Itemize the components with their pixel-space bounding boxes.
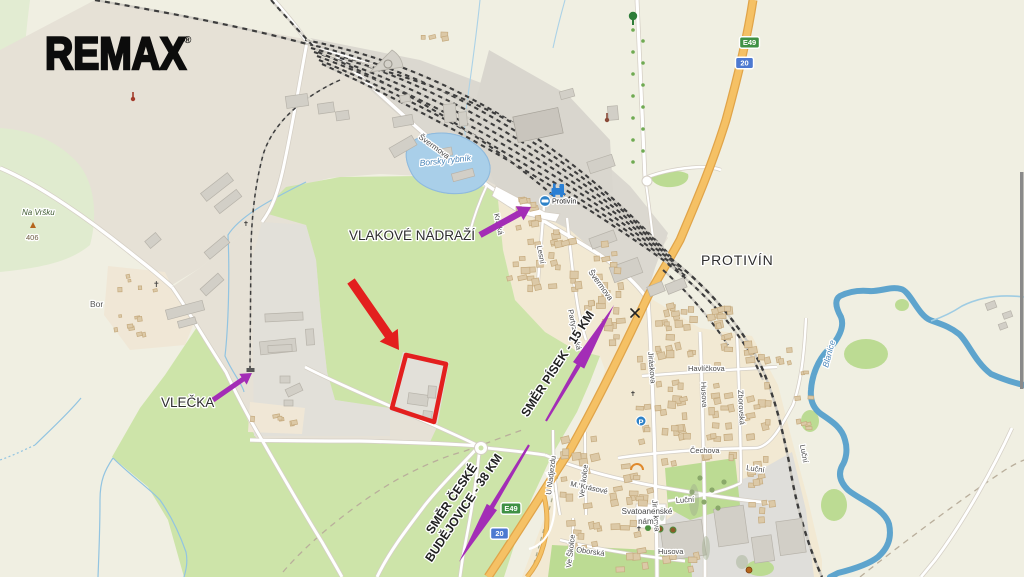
svg-text:®: ® <box>184 35 192 46</box>
svg-text:E49: E49 <box>504 504 517 513</box>
svg-text:406: 406 <box>26 233 39 242</box>
svg-text:VLAKOVÉ NÁDRAŽÍ: VLAKOVÉ NÁDRAŽÍ <box>349 228 475 243</box>
svg-text:✝: ✝ <box>630 390 636 398</box>
svg-text:✝: ✝ <box>636 525 642 533</box>
svg-text:Na Vršku: Na Vršku <box>22 208 55 217</box>
svg-text:Svatoanenské: Svatoanenské <box>622 507 673 516</box>
svg-text:Husova: Husova <box>658 547 684 556</box>
svg-text:Husova: Husova <box>699 382 709 409</box>
svg-text:Bor: Bor <box>90 299 103 309</box>
svg-text:Zborovská: Zborovská <box>736 390 747 426</box>
svg-text:E49: E49 <box>743 38 756 47</box>
svg-text:20: 20 <box>740 59 748 68</box>
svg-text:✝: ✝ <box>153 280 160 289</box>
svg-text:Čechova: Čechova <box>690 446 720 455</box>
svg-text:P: P <box>638 418 643 427</box>
svg-text:PROTIVÍN: PROTIVÍN <box>701 252 774 268</box>
svg-text:nám.: nám. <box>638 517 656 526</box>
svg-text:Protivín: Protivín <box>552 197 576 206</box>
svg-text:VLEČKA: VLEČKA <box>161 395 214 410</box>
svg-text:REMAX: REMAX <box>45 28 186 79</box>
svg-text:✝: ✝ <box>243 220 249 228</box>
svg-text:Havlíčkova: Havlíčkova <box>688 364 726 373</box>
svg-text:Luční: Luční <box>676 495 696 505</box>
svg-text:20: 20 <box>495 529 503 538</box>
